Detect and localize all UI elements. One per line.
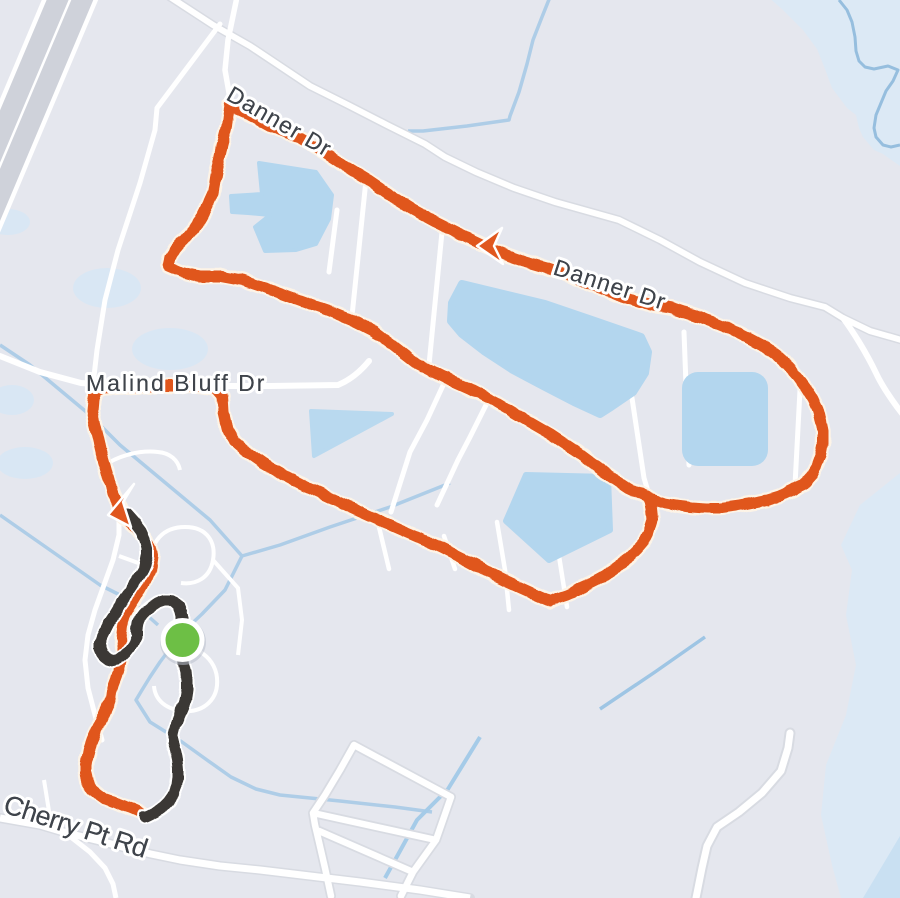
svg-text:Malind Bluff Dr: Malind Bluff Dr xyxy=(86,370,266,396)
